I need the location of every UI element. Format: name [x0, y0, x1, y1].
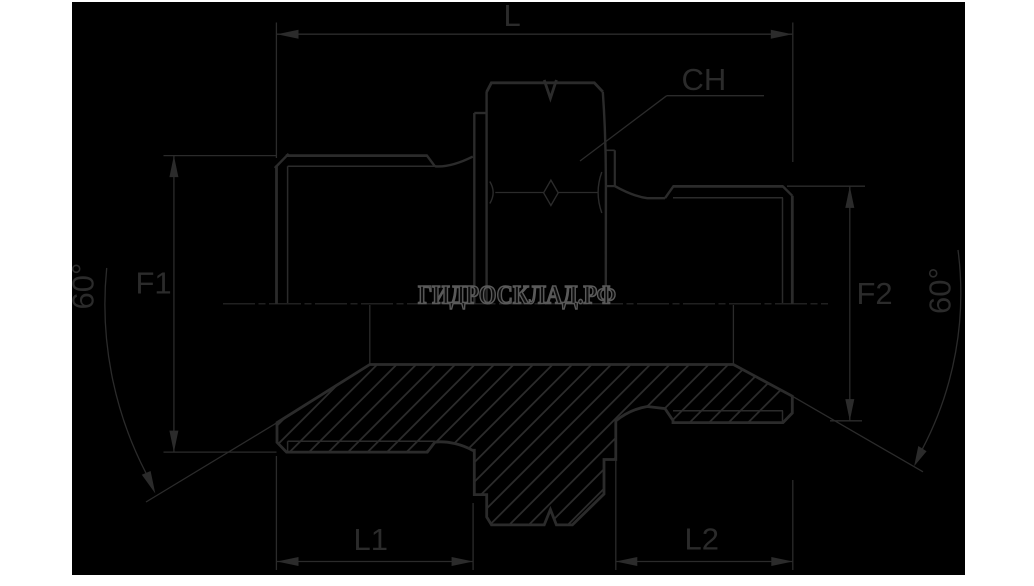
svg-text:F1: F1: [136, 266, 172, 301]
svg-text:CH: CH: [682, 62, 727, 97]
svg-text:L: L: [504, 0, 521, 33]
svg-text:L2: L2: [685, 522, 719, 557]
svg-text:60°: 60°: [66, 263, 101, 310]
svg-text:ГИДРОСКЛАД.РФ: ГИДРОСКЛАД.РФ: [418, 281, 616, 310]
svg-text:60°: 60°: [923, 267, 958, 314]
svg-text:L1: L1: [354, 522, 388, 557]
svg-text:F2: F2: [857, 276, 893, 311]
